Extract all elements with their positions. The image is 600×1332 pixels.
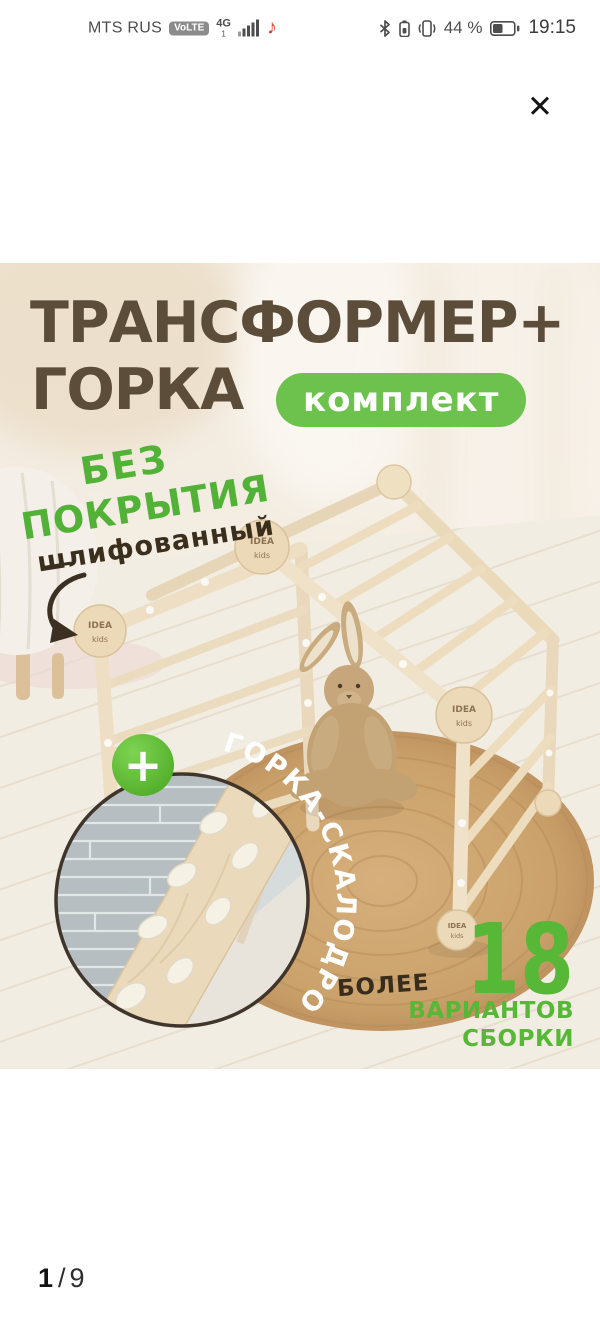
bt-device-battery-icon [399,20,410,37]
variants-block: БОЛЕЕ 18 ВАРИАНТОВ СБОРКИ [337,922,574,1053]
close-button[interactable]: ✕ [519,86,561,128]
bluetooth-icon [379,20,391,37]
battery-percent-label: 44 % [444,18,483,38]
music-note-icon: ♪ [267,17,277,40]
kit-badge-label: комплект [303,383,499,417]
variants-word2: СБОРКИ [337,1026,574,1054]
carrier-label: MTS RUS [88,19,162,37]
network-indicator: 4G 1 [216,18,231,38]
variants-count: 18 [466,922,574,998]
product-image[interactable]: IDEA kids IDEA kids IDEA kids IDEA kids [0,263,600,1069]
variants-prefix: БОЛЕЕ [337,972,431,1001]
close-icon: ✕ [527,89,553,125]
svg-text:kids: kids [92,635,108,644]
phone-screen: MTS RUS VoLTE 4G 1 ♪ [0,0,600,1332]
status-bar-left: MTS RUS VoLTE 4G 1 ♪ [88,17,277,40]
title-line1: ТРАНСФОРМЕР+ [30,295,564,352]
kit-badge: комплект [276,373,526,427]
svg-text:kids: kids [456,719,472,728]
vibrate-icon [418,20,436,37]
pager-current: 1 [38,1263,53,1293]
pager-total: 9 [70,1263,85,1293]
status-bar: MTS RUS VoLTE 4G 1 ♪ [0,0,600,56]
sim-slot-label: 1 [221,30,225,38]
svg-text:IDEA: IDEA [88,621,112,631]
battery-icon [490,21,520,36]
volte-badge: VoLTE [169,21,209,35]
status-bar-right: 44 % 19:15 [379,17,576,39]
svg-text:IDEA: IDEA [452,705,476,715]
clock-label: 19:15 [528,17,576,39]
pager: 1/9 [38,1263,85,1294]
brand-disc: IDEA kids [436,687,492,743]
pager-separator: / [58,1263,66,1293]
brand-disc: IDEA kids [74,605,126,657]
svg-text:kids: kids [254,551,270,560]
signal-bars-icon [238,20,260,37]
plus-badge: + [112,734,174,796]
plus-icon: + [124,738,163,792]
network-label: 4G [216,18,231,29]
title-line2: ГОРКА [31,362,243,419]
